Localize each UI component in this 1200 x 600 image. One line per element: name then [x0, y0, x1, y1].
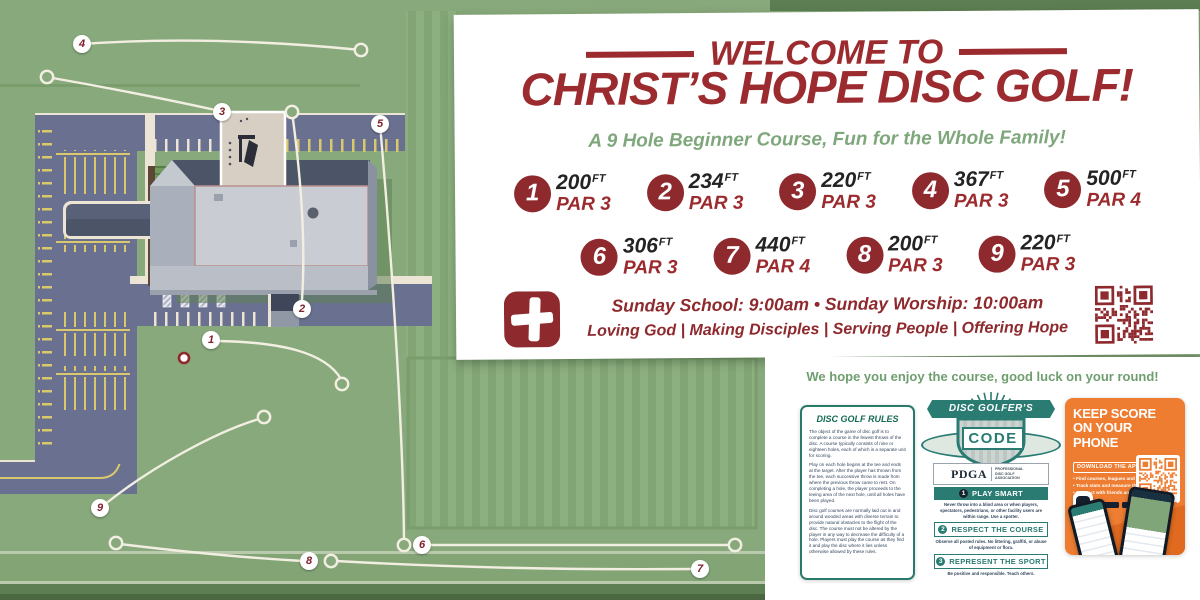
- phone-mockup-left: [1067, 497, 1121, 555]
- hole-text: 220FT PAR 3: [821, 170, 876, 212]
- hole-info: 8 200FT PAR 3: [846, 233, 943, 276]
- hole-par: PAR 4: [756, 257, 811, 276]
- hole-text: 440FT PAR 4: [755, 234, 810, 276]
- enjoy-text: We hope you enjoy the course, good luck …: [765, 370, 1200, 384]
- code-item-title: RESPECT THE COURSE: [951, 526, 1043, 534]
- hole-par: PAR 3: [556, 195, 611, 214]
- code-item-number: 3: [936, 557, 945, 566]
- code-item-title: REPRESENT THE SPORT: [949, 558, 1046, 566]
- schedule-line: Sunday School: 9:00am • Sunday Worship: …: [560, 292, 1095, 317]
- code-item-bar: 1 PLAY SMART: [934, 487, 1048, 500]
- hole-marker-3: 3: [213, 103, 231, 121]
- code-item-text: Be positive and responsible. Teach other…: [935, 571, 1047, 577]
- hole-par: PAR 3: [1021, 255, 1076, 274]
- hole-par: PAR 4: [1086, 191, 1141, 210]
- phone-screen-scorecard: [1070, 501, 1117, 555]
- hole-par: PAR 3: [821, 193, 876, 212]
- rules-paragraph: Disc golf courses are normally laid out …: [809, 508, 906, 556]
- panel-footer: Sunday School: 9:00am • Sunday Worship: …: [456, 281, 1200, 353]
- phone-screen-map: [1120, 489, 1172, 555]
- code-item: 3 REPRESENT THE SPORT Be positive and re…: [925, 554, 1057, 577]
- hole-info: 2 234FT PAR 3: [647, 171, 744, 214]
- hole-distance: 500FT: [1086, 168, 1141, 189]
- code-item: 1 PLAY SMART Never throw into a blind ar…: [925, 487, 1057, 519]
- holes-row-1: 1 200FT PAR 3 2 234FT PAR 3 3: [455, 167, 1200, 215]
- schedule-block: Sunday School: 9:00am • Sunday Worship: …: [560, 292, 1095, 341]
- hole-distance: 200FT: [888, 233, 943, 254]
- hole-info: 5 500FT PAR 4: [1044, 168, 1141, 211]
- title-dash-right: [959, 48, 1067, 55]
- hole-text: 220FT PAR 3: [1020, 232, 1075, 274]
- code-item-text: Observe all posted rules. No littering, …: [935, 539, 1047, 551]
- holes-row-2: 6 306FT PAR 3 7 440FT PAR 4 8: [455, 231, 1200, 279]
- hole-info: 3 220FT PAR 3: [779, 170, 876, 213]
- hole-marker-4: 4: [73, 35, 91, 53]
- hole-distance: 367FT: [954, 169, 1009, 190]
- hole-marker-5: 5: [371, 115, 389, 133]
- church-cross-logo: [504, 291, 560, 347]
- hole-par: PAR 3: [623, 258, 678, 277]
- hole-info: 7 440FT PAR 4: [713, 234, 810, 277]
- hole-number-badge: 9: [978, 235, 1015, 272]
- hole-distance: 234FT: [689, 171, 744, 192]
- code-item-number: 2: [938, 525, 947, 534]
- hole-text: 367FT PAR 3: [954, 169, 1009, 211]
- hole-number-badge: 3: [779, 173, 816, 210]
- disc-golf-rules-card: DISC GOLF RULES The object of the game o…: [800, 405, 915, 580]
- hole-text: 200FT PAR 3: [556, 172, 611, 214]
- hole-number-badge: 5: [1044, 171, 1081, 208]
- hole-text: 306FT PAR 3: [623, 235, 678, 277]
- hole-info: 9 220FT PAR 3: [978, 232, 1075, 275]
- code-item-bar: 2 RESPECT THE COURSE: [934, 522, 1048, 537]
- code-banner: DISC GOLFER’S: [927, 400, 1055, 418]
- hole-info: 4 367FT PAR 3: [912, 169, 1009, 212]
- code-items: 1 PLAY SMART Never throw into a blind ar…: [925, 487, 1057, 580]
- hole-number-badge: 8: [846, 236, 883, 273]
- hole-marker-2: 2: [293, 300, 311, 318]
- church-motto: Loving God | Making Disciples | Serving …: [560, 318, 1095, 341]
- hole-text: 234FT PAR 3: [689, 171, 744, 213]
- code-item: 2 RESPECT THE COURSE Observe all posted …: [925, 522, 1057, 551]
- hole-info: 6 306FT PAR 3: [581, 235, 678, 278]
- pdga-logo: PDGA Professional Disc Golf Association: [933, 463, 1049, 485]
- hole-number-badge: 7: [713, 237, 750, 274]
- hole-marker-8: 8: [300, 552, 318, 570]
- hole-number-badge: 1: [514, 175, 551, 212]
- bottom-panel: We hope you enjoy the course, good luck …: [765, 357, 1200, 600]
- udisc-app-card: KEEP SCORE ON YOUR PHONE DOWNLOAD THE AP…: [1065, 398, 1185, 555]
- rules-paragraph: Play on each hole begins at the tee and …: [809, 462, 906, 504]
- hole-distance: 440FT: [755, 234, 810, 255]
- code-shield-word: CODE: [962, 427, 1024, 450]
- welcome-panel: WELCOME TO CHRIST’S HOPE DISC GOLF! A 9 …: [454, 9, 1200, 360]
- code-item-number: 1: [959, 489, 968, 498]
- hole-number-badge: 6: [581, 238, 618, 275]
- rules-title: DISC GOLF RULES: [809, 415, 906, 424]
- disc-golf-welcome-sign: 123456789 WELCOME TO CHRIST’S HOPE DISC …: [0, 0, 1200, 600]
- hole-distance: 200FT: [556, 172, 611, 193]
- hole-marker-6: 6: [413, 536, 431, 554]
- download-app-label: DOWNLOAD THE APP: [1073, 462, 1144, 473]
- church-qr-code: [1095, 285, 1153, 343]
- hole-par: PAR 3: [689, 194, 744, 213]
- hole-number-badge: 2: [647, 174, 684, 211]
- phone-mockups: [1065, 489, 1185, 555]
- code-item-text: Never throw into a blind area or when pl…: [935, 502, 1047, 519]
- code-item-bar: 3 REPRESENT THE SPORT: [934, 554, 1048, 569]
- title-dash-left: [586, 51, 694, 58]
- disc-golfers-code-badge: DISC GOLFER’S CODE PDGA Professional Dis…: [925, 393, 1057, 565]
- code-item-title: PLAY SMART: [972, 490, 1023, 498]
- hole-number-badge: 4: [912, 172, 949, 209]
- hole-marker-9: 9: [91, 499, 109, 517]
- hole-info: 1 200FT PAR 3: [514, 172, 611, 215]
- pdga-wordmark: PDGA: [951, 468, 987, 480]
- app-card-title: KEEP SCORE ON YOUR PHONE: [1073, 407, 1177, 450]
- pdga-tagline: Professional Disc Golf Association: [991, 467, 1031, 480]
- hole-marker-7: 7: [691, 560, 709, 578]
- hole-text: 500FT PAR 4: [1086, 168, 1141, 210]
- hole-par: PAR 3: [888, 256, 943, 275]
- hole-distance: 220FT: [821, 170, 876, 191]
- hole-par: PAR 3: [954, 192, 1009, 211]
- phone-mockup-right: [1117, 486, 1176, 555]
- course-title: CHRIST’S HOPE DISC GOLF!: [454, 61, 1199, 113]
- rules-paragraph: The object of the game of disc golf is t…: [809, 429, 906, 459]
- hole-distance: 306FT: [623, 235, 678, 256]
- hole-text: 200FT PAR 3: [888, 233, 943, 275]
- course-subtitle: A 9 Hole Beginner Course, Fun for the Wh…: [455, 127, 1200, 154]
- hole-distance: 220FT: [1020, 232, 1075, 253]
- hole-marker-1: 1: [202, 331, 220, 349]
